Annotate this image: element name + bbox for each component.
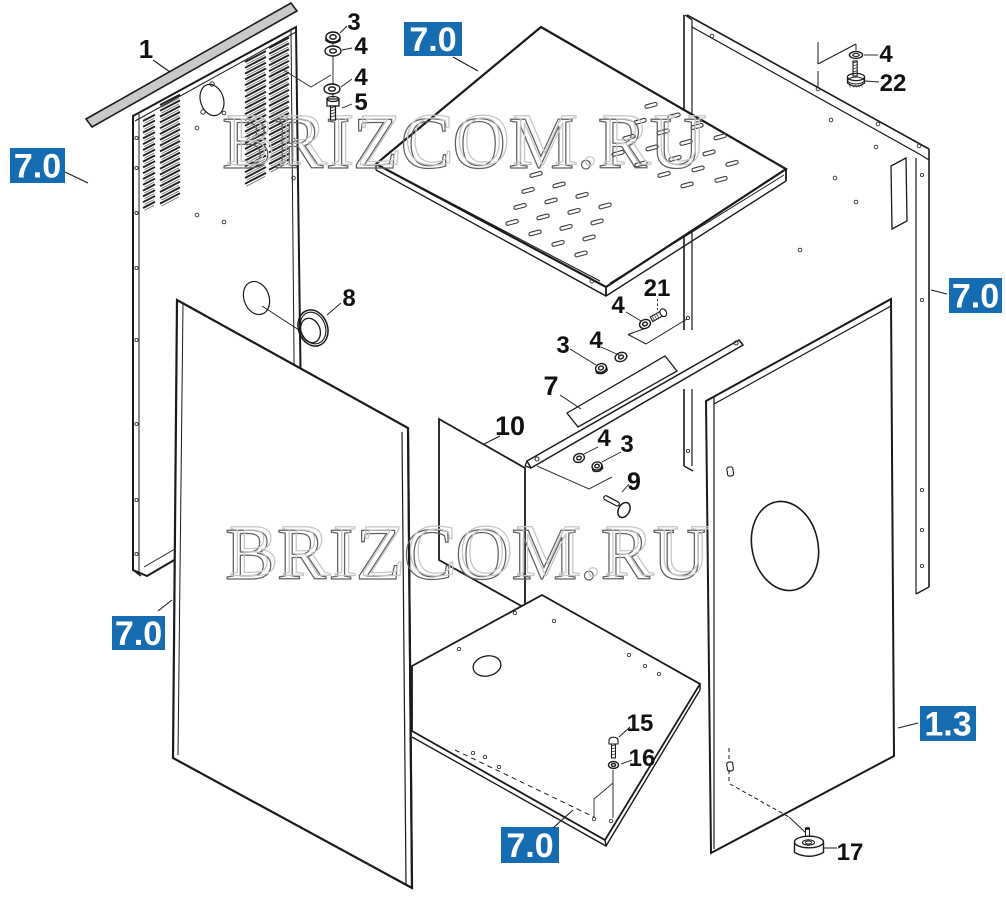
svg-text:BRIZCOM.RU: BRIZCOM.RU [226, 100, 709, 182]
svg-text:5: 5 [354, 89, 367, 116]
svg-text:7.0: 7.0 [952, 278, 999, 316]
svg-text:3: 3 [620, 431, 633, 458]
svg-text:3: 3 [347, 9, 360, 36]
svg-text:16: 16 [629, 745, 656, 772]
svg-text:BRIZCOM.RU: BRIZCOM.RU [229, 511, 712, 593]
svg-text:4: 4 [611, 292, 625, 319]
svg-text:10: 10 [495, 411, 525, 441]
svg-text:4: 4 [354, 33, 368, 60]
svg-text:1: 1 [139, 34, 153, 64]
svg-text:22: 22 [880, 70, 907, 97]
svg-text:4: 4 [597, 425, 611, 452]
svg-text:7: 7 [543, 371, 558, 401]
svg-text:21: 21 [644, 275, 671, 302]
svg-text:9: 9 [627, 468, 641, 496]
svg-text:4: 4 [879, 41, 893, 68]
svg-text:7.0: 7.0 [409, 21, 456, 59]
svg-text:1.3: 1.3 [924, 706, 971, 744]
svg-text:7.0: 7.0 [115, 615, 162, 653]
svg-text:4: 4 [589, 327, 603, 354]
svg-text:7.0: 7.0 [506, 827, 553, 865]
svg-text:3: 3 [556, 332, 569, 359]
svg-text:8: 8 [342, 285, 355, 312]
svg-text:7.0: 7.0 [14, 148, 61, 186]
svg-text:4: 4 [354, 64, 368, 91]
svg-text:15: 15 [627, 710, 654, 737]
svg-text:17: 17 [837, 839, 864, 866]
